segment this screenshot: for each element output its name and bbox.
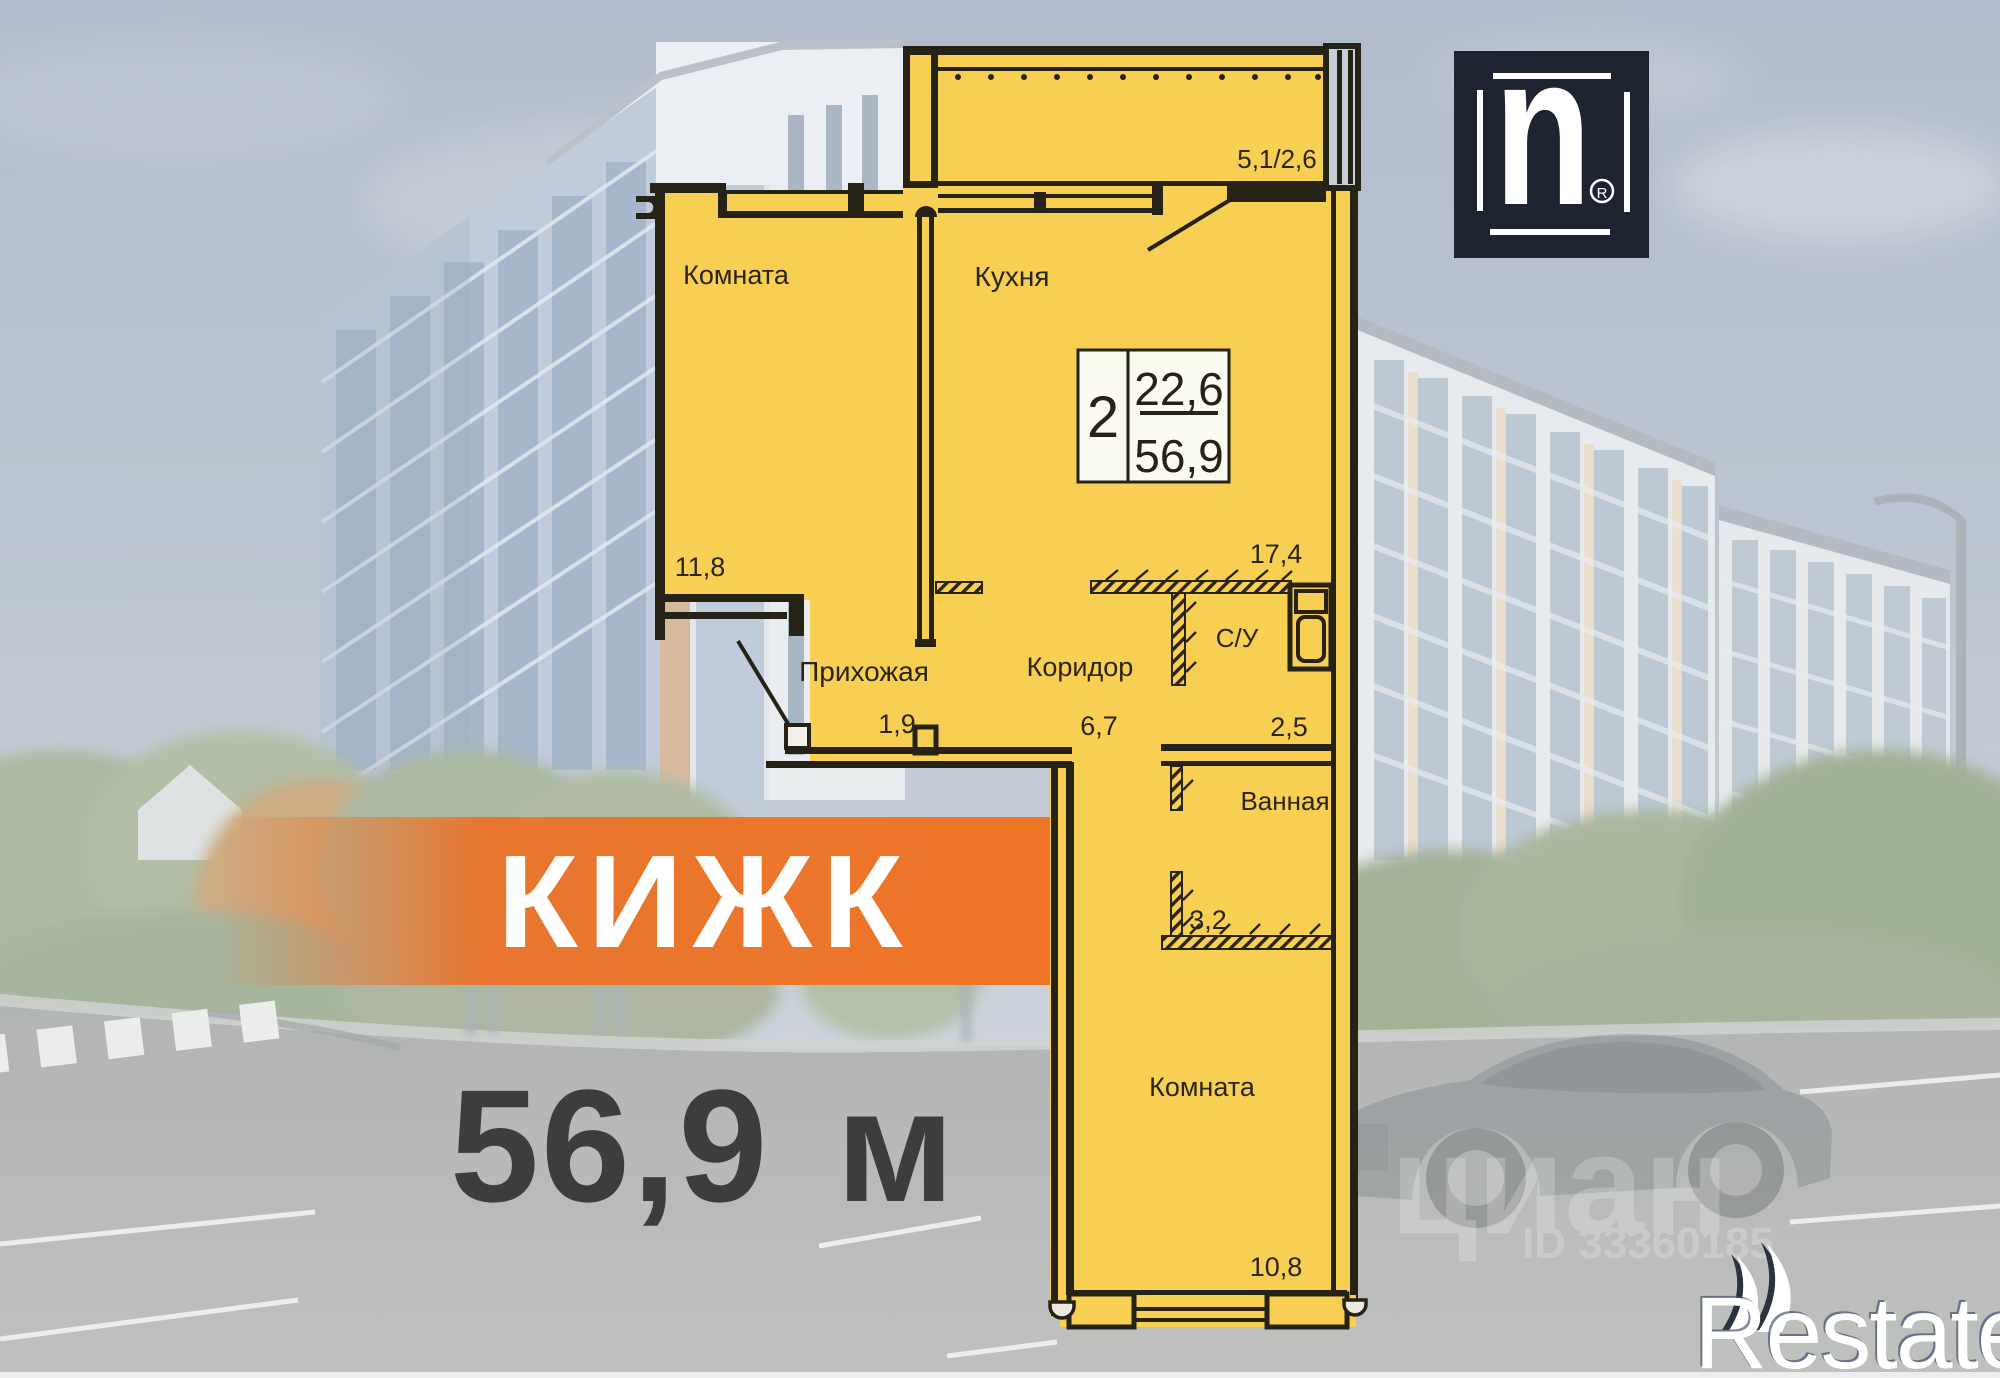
svg-text:10,8: 10,8 — [1250, 1252, 1303, 1282]
svg-text:1,9: 1,9 — [878, 709, 916, 739]
svg-text:5,1/2,6: 5,1/2,6 — [1237, 144, 1317, 174]
svg-text:11,8: 11,8 — [675, 552, 726, 582]
svg-text:56,9: 56,9 — [1134, 430, 1224, 482]
svg-text:Restate: Restate — [1694, 1276, 2000, 1378]
svg-text:С/У: С/У — [1216, 623, 1259, 653]
svg-text:6,7: 6,7 — [1080, 711, 1118, 741]
svg-text:2,5: 2,5 — [1270, 712, 1308, 742]
svg-text:КИЖК: КИЖК — [497, 828, 912, 975]
svg-text:n: n — [1494, 10, 1592, 251]
svg-text:Прихожая: Прихожая — [799, 656, 929, 687]
svg-text:Кухня: Кухня — [975, 261, 1050, 292]
svg-text:3,2: 3,2 — [1189, 905, 1227, 935]
svg-text:56,9: 56,9 — [450, 1056, 769, 1235]
svg-text:17,4: 17,4 — [1250, 539, 1303, 569]
svg-text:Комната: Комната — [683, 260, 790, 290]
svg-text:Коридор: Коридор — [1027, 652, 1134, 682]
svg-text:м: м — [836, 1056, 954, 1235]
svg-text:Комната: Комната — [1149, 1072, 1256, 1102]
svg-text:Ванная: Ванная — [1240, 786, 1329, 816]
svg-text:R: R — [1597, 185, 1608, 202]
svg-text:2: 2 — [1087, 385, 1119, 450]
svg-text:22,6: 22,6 — [1134, 363, 1224, 415]
